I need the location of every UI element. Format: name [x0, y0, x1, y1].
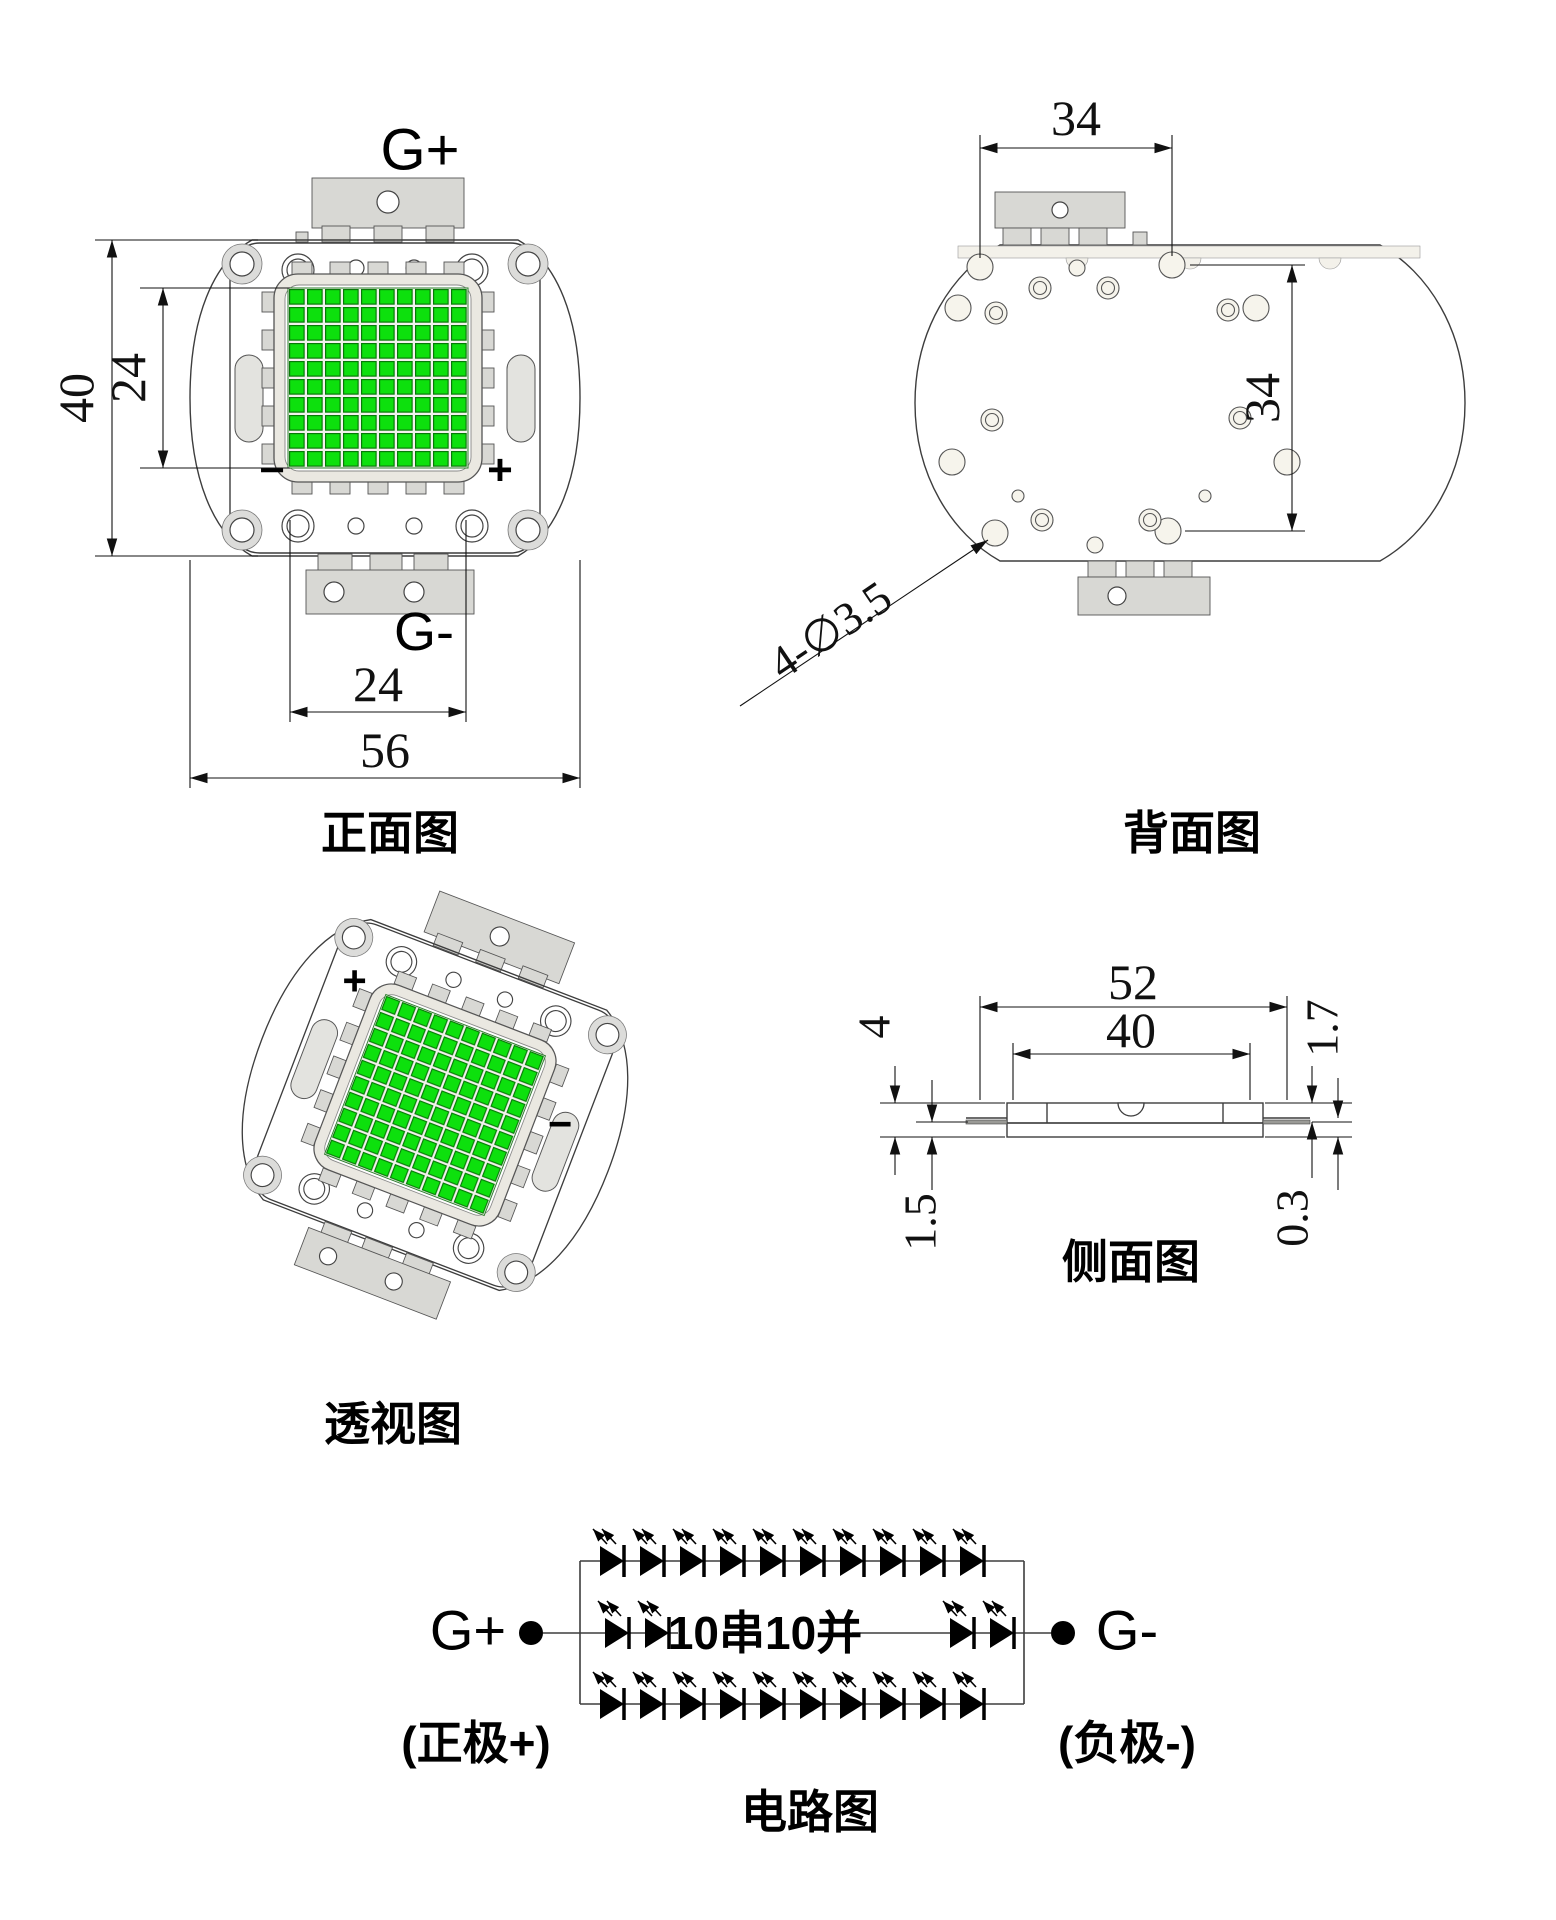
back-top-band: [958, 246, 1420, 269]
front-minus-mark: −: [259, 446, 285, 495]
back-view: 34 34 4-∅3.5 背面图: [740, 90, 1465, 859]
back-hole-callout: 4-∅3.5: [740, 540, 988, 706]
circuit-positive-node: [519, 1621, 543, 1645]
circuit-led-row-bottom: [593, 1672, 984, 1720]
side-view: 52 40 4 1.5 1.7 0.3 侧面图: [849, 954, 1353, 1288]
circuit-diagram: 10串10并 G+ G- (正极+) (负极-) 电路图: [401, 1529, 1196, 1838]
front-top-tab: [296, 178, 464, 242]
circuit-led-row-top: [593, 1529, 984, 1577]
front-dim-40: 40: [48, 373, 104, 423]
front-dim-24-bottom: 24: [353, 656, 403, 712]
circuit-negative-label: (负极-): [1058, 1717, 1196, 1769]
back-bottom-tab: [1078, 561, 1210, 615]
side-dim-4-text: 4: [849, 1016, 900, 1039]
side-notch: [1118, 1103, 1144, 1116]
front-led-frame: [262, 262, 494, 494]
back-body: [915, 245, 1465, 561]
perspective-view-title: 透视图: [324, 1398, 462, 1450]
circuit-positive-terminal: G+: [430, 1599, 506, 1662]
front-view: G+ − +: [48, 118, 580, 860]
back-dim-34-top: 34: [1051, 90, 1101, 146]
persp-top-tab: [421, 891, 575, 992]
front-terminal-bottom-label: G-: [394, 602, 454, 662]
side-dim-1-7: 1.7: [1265, 999, 1352, 1178]
front-dim-24-left: 24: [100, 353, 156, 403]
persp-minus-mark: −: [548, 1100, 572, 1147]
drawing-sheet: G+ − +: [0, 0, 1556, 1920]
back-hole-callout-text: 4-∅3.5: [759, 571, 900, 689]
circuit-positive-label: (正极+): [401, 1717, 551, 1769]
circuit-config-label: 10串10并: [668, 1607, 862, 1659]
front-led-grid: [288, 288, 468, 468]
side-base-strip: [1007, 1123, 1263, 1137]
persp-led-frame: [290, 960, 580, 1250]
front-view-title: 正面图: [321, 807, 459, 859]
side-dim-4: 4: [849, 1016, 1006, 1176]
back-dim-34-right: 34: [1234, 373, 1290, 423]
front-dim-56: 56: [360, 722, 410, 778]
persp-bottom-tab: [294, 1217, 454, 1319]
back-top-tab: [995, 192, 1147, 245]
side-dim-1-5-text: 1.5: [895, 1193, 946, 1251]
side-dim-0-3-text: 0.3: [1267, 1189, 1318, 1247]
side-dim-40: 40: [1013, 1002, 1250, 1100]
circuit-negative-terminal: G-: [1096, 1599, 1158, 1662]
front-plus-mark: +: [487, 446, 513, 495]
perspective-view: + −: [191, 851, 681, 1358]
side-view-title: 侧面图: [1062, 1236, 1200, 1288]
side-dim-1-5: 1.5: [895, 1080, 969, 1251]
side-dim-1-7-text: 1.7: [1297, 999, 1348, 1057]
circuit-title: 电路图: [741, 1786, 879, 1838]
persp-plus-mark: +: [342, 957, 366, 1004]
front-terminal-top-label: G+: [381, 118, 460, 183]
circuit-negative-node: [1051, 1621, 1075, 1645]
side-dim-40-text: 40: [1106, 1002, 1156, 1058]
back-view-title: 背面图: [1123, 807, 1261, 859]
